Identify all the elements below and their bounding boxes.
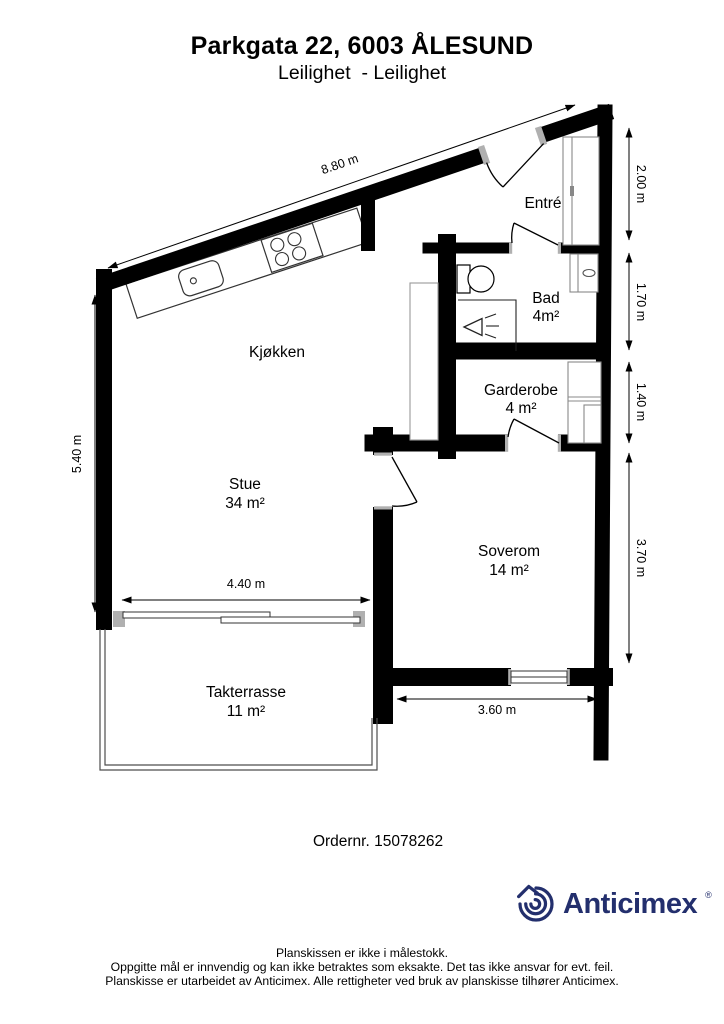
kitchen-tall-cabinet [410, 283, 438, 440]
dim-label-right-garderobe: 1.40 m [634, 383, 648, 421]
disclaimer-line-3: Planskisse er utarbeidet av Anticimex. A… [0, 974, 724, 988]
room-area-garderobe: 4 m² [506, 400, 537, 417]
bedroom-window [511, 671, 567, 683]
bathroom-sink-icon [570, 254, 598, 292]
entre-closet [563, 137, 599, 245]
room-label-bad: Bad [532, 290, 560, 307]
sliding-door [123, 612, 360, 623]
registered-mark: ® [705, 890, 712, 900]
room-label-stue: Stue [229, 476, 261, 493]
disclaimer-line-2: Oppgitte mål er innvendig og kan ikke be… [0, 960, 724, 974]
dim-label-right-soverom: 3.70 m [634, 539, 648, 577]
order-number: Ordernr. 15078262 [16, 833, 724, 851]
room-label-kjokken: Kjøkken [249, 344, 305, 361]
room-label-takterrasse: Takterrasse [206, 684, 286, 701]
anticimex-swirl-icon [516, 884, 556, 924]
dim-label-left: 5.40 m [70, 435, 84, 473]
dim-label-soverom-width: 3.60 m [478, 703, 516, 717]
room-label-entre: Entré [524, 195, 561, 212]
room-label-garderobe: Garderobe [484, 382, 558, 399]
disclaimer-line-1: Planskissen er ikke i målestokk. [0, 946, 724, 960]
dim-label-stue-width: 4.40 m [227, 577, 265, 591]
dim-label-diagonal: 8.80 m [319, 151, 360, 177]
room-area-soverom: 14 m² [489, 562, 529, 579]
floorplan-drawing: 8.80 m 5.40 m 2.00 m 1.70 m 1.40 m 3.70 … [0, 0, 724, 810]
anticimex-wordmark: Anticimex [563, 888, 697, 921]
anticimex-logo: Anticimex ® [516, 884, 712, 924]
room-label-soverom: Soverom [478, 543, 540, 560]
soverom-door [392, 457, 417, 506]
room-area-takterrasse: 11 m² [227, 703, 265, 720]
garderobe-closet [568, 362, 601, 443]
dim-label-right-bad: 1.70 m [634, 283, 648, 321]
toilet-icon [457, 265, 494, 293]
room-area-bad: 4m² [533, 308, 560, 325]
dim-label-right-entre: 2.00 m [634, 165, 648, 203]
floorplan-page: Parkgata 22, 6003 ÅLESUND Leilighet - Le… [0, 0, 724, 1024]
room-area-stue: 34 m² [225, 495, 265, 512]
disclaimer: Planskissen er ikke i målestokk. Oppgitt… [0, 946, 724, 988]
